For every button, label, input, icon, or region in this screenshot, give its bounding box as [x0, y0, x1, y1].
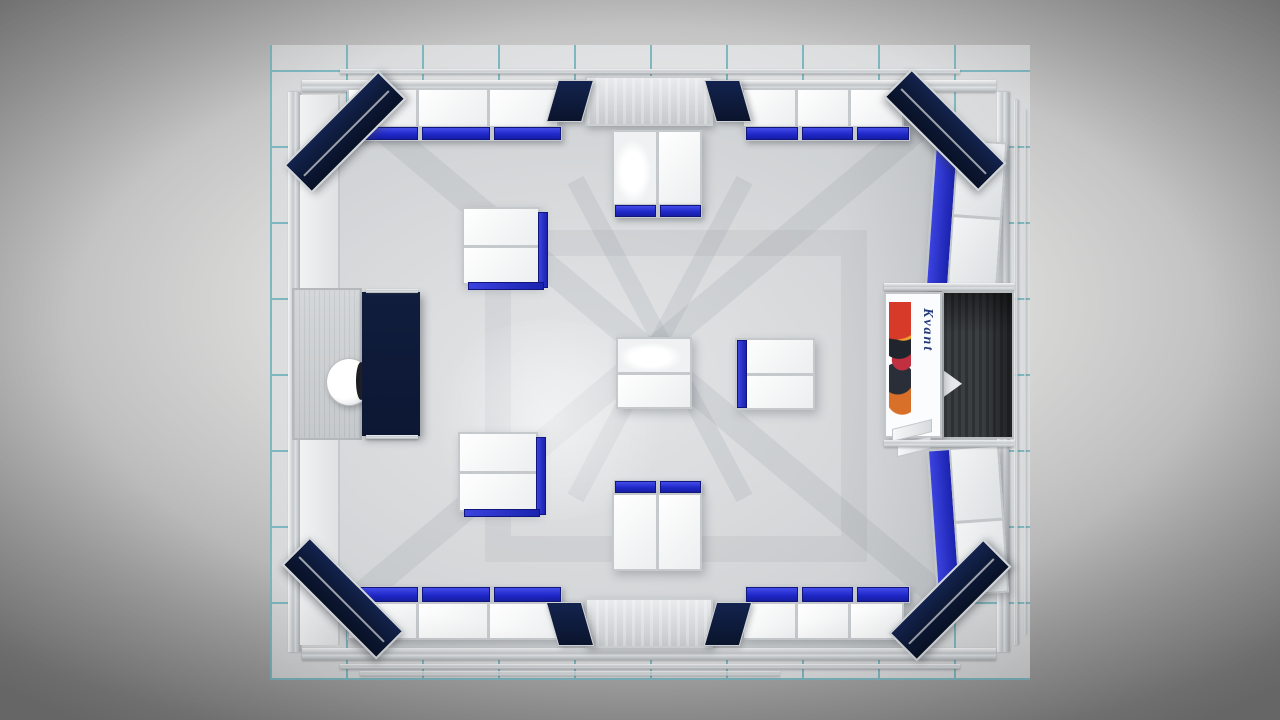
counter-bay	[744, 604, 795, 638]
blue-panel	[857, 127, 909, 140]
counter-bay	[460, 471, 536, 511]
storage-door-notch	[944, 371, 962, 397]
counter-bay	[487, 604, 557, 638]
counter-bay	[460, 434, 536, 471]
blue-band-bottom-left	[350, 586, 562, 603]
shelf-pane	[949, 214, 1000, 293]
blue-panel	[422, 127, 489, 140]
counter-bay	[737, 340, 813, 373]
counter-bay	[416, 90, 486, 126]
counter-bay	[464, 245, 538, 284]
counter-row-bottom-right	[742, 602, 904, 640]
counter-bay	[737, 373, 813, 409]
blue-band-bottom-center	[614, 480, 702, 494]
island-counter-upper-left	[462, 207, 540, 285]
blue-panel	[615, 481, 656, 493]
island-counter-bottom-center	[612, 493, 702, 571]
counter-bay	[618, 339, 690, 372]
center-counter-illuminated	[616, 337, 692, 409]
blue-panel	[660, 481, 701, 493]
brand-graphic-tower: Kvant	[884, 292, 942, 438]
brand-logo-text: Kvant	[919, 308, 935, 430]
island-counter-lower-left	[458, 432, 538, 512]
blue-edge-upper-left-counter-bottom	[468, 282, 544, 290]
blue-panel	[802, 127, 854, 140]
counter-row-top-right	[742, 88, 904, 128]
blue-panel	[660, 205, 701, 217]
blue-panel	[494, 127, 561, 140]
blue-panel	[422, 587, 489, 602]
blue-edge-upper-left-counter	[538, 212, 548, 288]
blue-panel	[494, 587, 561, 602]
desk-end-cap-bottom	[366, 435, 418, 439]
render-viewport: Kvant	[0, 0, 1280, 720]
brand-logo-graphic	[889, 302, 911, 418]
counter-bay	[656, 495, 701, 569]
entrance-canopy-bottom	[585, 598, 713, 648]
meeting-desk	[362, 292, 420, 436]
desk-end-cap-top	[366, 289, 418, 293]
blue-panel	[802, 587, 854, 602]
wall-rail-top-outer	[340, 69, 960, 74]
wall-rail-right-2	[1024, 110, 1026, 635]
blue-panel	[857, 587, 909, 602]
blue-edge-lower-left-counter-bottom	[464, 509, 540, 517]
blue-panel	[746, 127, 798, 140]
blue-band-top-center	[614, 204, 702, 218]
wall-rail-bottom-outer	[340, 664, 960, 669]
storage-room-interior	[942, 291, 1014, 439]
counter-bay	[464, 209, 538, 245]
counter-bay	[618, 372, 690, 408]
entrance-canopy-top	[585, 76, 713, 126]
island-counter-top-center	[612, 130, 702, 206]
counter-bay	[614, 495, 656, 569]
blue-panel	[746, 587, 798, 602]
wall-beam-bottom	[302, 648, 996, 660]
blue-panel	[615, 205, 656, 217]
blue-band-top-left	[350, 126, 562, 141]
counter-bay	[795, 604, 849, 638]
right-bay-top-rail	[884, 283, 1014, 291]
blue-band-top-right	[745, 126, 910, 141]
right-bay-bottom-rail	[884, 440, 1014, 447]
counter-bay	[614, 132, 656, 204]
center-counter-blue-edge	[735, 338, 815, 410]
counter-bay	[416, 604, 486, 638]
shelf-pane	[951, 447, 1002, 521]
blue-edge-lower-left-counter	[536, 437, 546, 515]
wall-rail-right-1	[1014, 100, 1018, 645]
counter-bay	[656, 132, 701, 204]
counter-bay	[795, 90, 849, 126]
blue-edge-center-counter	[737, 340, 747, 408]
floor-runner-rail	[360, 671, 780, 676]
blue-band-bottom-right	[745, 586, 910, 603]
